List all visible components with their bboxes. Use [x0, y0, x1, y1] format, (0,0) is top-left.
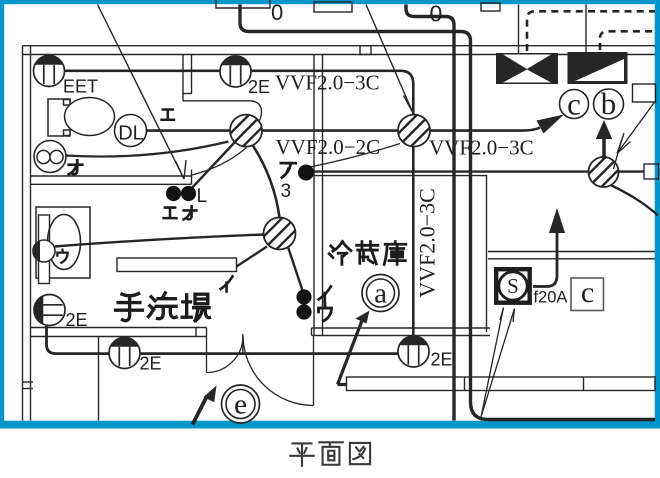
svg-text:0: 0	[271, 0, 283, 25]
svg-text:c: c	[567, 87, 581, 122]
svg-text:VVF2.0−3C: VVF2.0−3C	[415, 188, 440, 298]
svg-text:c: c	[581, 276, 594, 309]
svg-text:2E: 2E	[66, 310, 88, 330]
svg-text:f20A: f20A	[534, 289, 568, 307]
svg-text:VVF2.0−2C: VVF2.0−2C	[276, 135, 381, 159]
svg-text:L: L	[197, 186, 208, 207]
svg-text:DL: DL	[118, 123, 144, 145]
svg-text:3: 3	[281, 181, 292, 202]
svg-text:S: S	[507, 274, 519, 298]
svg-text:a: a	[374, 278, 387, 310]
svg-text:0: 0	[430, 1, 443, 27]
svg-text:b: b	[601, 86, 617, 121]
svg-text:2E: 2E	[248, 77, 270, 97]
svg-text:2E: 2E	[140, 354, 162, 374]
svg-text:VVF2.0−3C: VVF2.0−3C	[275, 71, 380, 95]
svg-text:VVF2.0−3C: VVF2.0−3C	[429, 136, 534, 160]
svg-text:2E: 2E	[431, 350, 453, 370]
svg-text:EET: EET	[63, 77, 98, 97]
svg-text:e: e	[234, 389, 247, 421]
